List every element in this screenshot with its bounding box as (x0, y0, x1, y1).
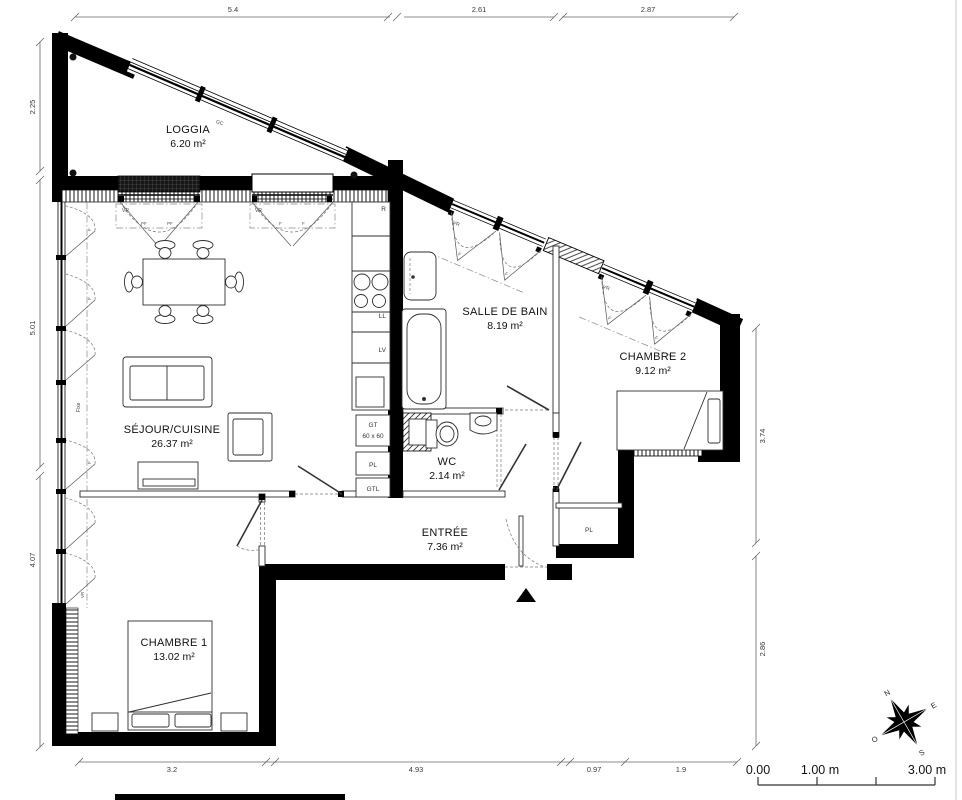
room-area-sejour: 26.37 m² (151, 438, 193, 450)
vr-label: VR (255, 208, 262, 214)
f-label: F (87, 297, 92, 300)
chambre1-wall-lining (66, 608, 78, 734)
cooktop-burner (372, 274, 388, 290)
room-label-loggia: LOGGIA (166, 124, 210, 136)
dim-top-2: 2.61 (472, 5, 487, 14)
gt-label: GT (368, 422, 377, 429)
room-area-entree: 7.36 m² (427, 541, 463, 553)
room-area-wc: 2.14 m² (429, 470, 465, 482)
dining-chair (193, 306, 213, 324)
pillow (175, 714, 211, 727)
compass-n: N (883, 688, 892, 699)
dim-bottom-3: 0.97 (587, 765, 602, 774)
room-label-wc: WC (438, 456, 457, 468)
chambre2-windows: VR F F (579, 261, 699, 358)
dim-right-1: 3.74 (758, 429, 767, 444)
f-label: F (607, 315, 612, 321)
dining-table (143, 259, 225, 305)
dining-chair (155, 306, 175, 324)
armchair (228, 413, 272, 461)
entrance-marker (516, 588, 536, 602)
nightstand (221, 713, 247, 731)
room-area-loggia: 6.20 m² (170, 138, 206, 150)
closet-pl-label: PL (585, 527, 593, 534)
vr-label: VR (122, 208, 129, 214)
dimensions-bottom: 3.2 4.93 0.97 1.9 (75, 758, 741, 774)
f-label: F (87, 228, 92, 231)
f-label: F (504, 271, 509, 277)
room-label-sejour: SÉJOUR/CUISINE (124, 423, 221, 436)
toilet-tank (426, 420, 437, 448)
gt-size-label: 60 x 60 (362, 433, 384, 440)
gtl-label: GTL (367, 486, 380, 493)
vr-label: VR (602, 284, 611, 292)
room-label-entree: ENTRÉE (422, 526, 468, 539)
compass-rose: N E S O (853, 671, 956, 775)
kitchen-units: R LL LV GT 60 x 60 PL GTL (352, 202, 390, 497)
dim-top-3: 2.87 (641, 5, 656, 14)
scale-one: 1.00 m (801, 763, 839, 777)
oven (356, 377, 384, 407)
dining-chair (155, 241, 175, 259)
sofa (123, 357, 212, 407)
wc-fixtures (403, 413, 497, 451)
left-facade-glazing: F F F Fixe VR (56, 202, 95, 608)
vr-label: VR (80, 591, 85, 598)
scale-zero: 0.00 (746, 763, 770, 777)
dining-chair (125, 272, 143, 292)
floor-plan-canvas: VR F F VR F F VR PF PF (0, 0, 962, 800)
dining-chair (226, 272, 244, 292)
nightstand (92, 713, 118, 731)
pl-label: PL (369, 462, 377, 469)
ll-label: LL (379, 313, 387, 320)
f-label: F (654, 335, 659, 341)
sejour-top-window-right: VR F F (250, 174, 335, 246)
f-label: F (302, 221, 305, 226)
dimensions-left: 2.25 5.01 4.07 (28, 38, 44, 751)
pillow (132, 714, 169, 727)
pillow (708, 399, 720, 443)
dim-bottom-1: 3.2 (167, 765, 177, 774)
vr-label: VR (452, 220, 461, 228)
scale-three: 3.00 m (908, 763, 946, 777)
room-area-sdb: 8.19 m² (487, 320, 523, 332)
cooktop-burner (373, 295, 386, 308)
gt-box (356, 415, 390, 446)
f-label: F (279, 221, 282, 226)
compass-o: O (870, 734, 880, 745)
compass-s: S (917, 748, 926, 758)
floor-plan-page: VR F F VR F F VR PF PF (0, 0, 962, 800)
dim-right-2: 2.86 (758, 642, 767, 657)
cooktop-burner (354, 274, 370, 290)
insulated-wall-band (62, 190, 388, 202)
bathtub (402, 309, 446, 409)
dining-chair (193, 241, 213, 259)
fixe-label: Fixe (76, 402, 82, 412)
scale-bar: 0.00 1.00 m 3.00 m (746, 763, 946, 785)
room-label-chambre2: CHAMBRE 2 (620, 351, 687, 363)
room-area-chambre1: 13.02 m² (153, 651, 195, 663)
lv-label: LV (379, 347, 387, 354)
f-label: F (457, 251, 462, 257)
dining-set (125, 241, 244, 324)
f-label: F (87, 461, 92, 464)
room-label-chambre1: CHAMBRE 1 (141, 637, 208, 649)
tv-stand (138, 462, 198, 489)
dim-bottom-2: 4.93 (409, 765, 424, 774)
chambre2-bed (617, 391, 723, 450)
loggia-columns (70, 54, 358, 179)
loggia-glazing (127, 57, 348, 164)
dim-left-2: 5.01 (28, 321, 37, 336)
dimensions-top: 5.4 2.61 2.87 (71, 5, 738, 21)
room-area-chambre2: 9.12 m² (635, 365, 671, 377)
page-edge-bar (115, 794, 345, 800)
fridge-label: R (381, 206, 386, 213)
gc-label: GC (215, 119, 224, 127)
room-label-sdb: SALLE DE BAIN (462, 306, 547, 318)
washbasin (404, 252, 436, 300)
dim-left-3: 4.07 (28, 553, 37, 568)
dimensions-right: 3.74 2.86 (752, 324, 767, 750)
pf-label: PF (167, 221, 173, 226)
dim-bottom-4: 1.9 (676, 765, 686, 774)
diagonal-hatched-wall (543, 238, 604, 274)
pf-label: PF (141, 221, 147, 226)
sejour-top-window-left: VR PF PF (116, 176, 202, 246)
dim-top-1: 5.4 (228, 5, 238, 14)
compass-e: E (929, 700, 938, 710)
dim-left-1: 2.25 (28, 100, 37, 115)
cooktop-burner (355, 295, 368, 308)
